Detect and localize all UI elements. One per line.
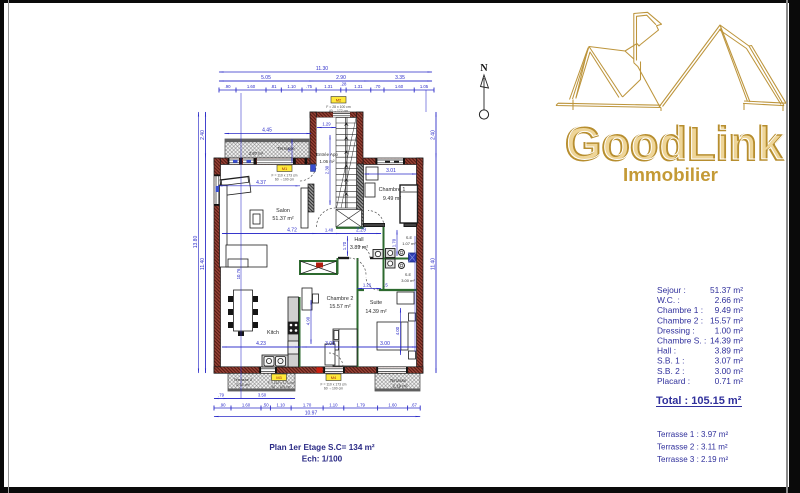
svg-text:Terrasse: Terrasse	[390, 378, 407, 383]
svg-text:5.05: 5.05	[261, 75, 271, 81]
svg-text:.5: .5	[384, 283, 388, 288]
svg-text:2.30: 2.30	[325, 165, 330, 174]
svg-text:.90: .90	[220, 403, 227, 408]
svg-text:Plan 1er Etage S.C= 134 m²: Plan 1er Etage S.C= 134 m²	[269, 443, 375, 452]
svg-text:60 →100 cm: 60 →100 cm	[275, 178, 294, 182]
svg-text:2.97 m²: 2.97 m²	[249, 151, 264, 156]
svg-text:15.57 m²: 15.57 m²	[710, 315, 743, 325]
svg-text:60 →100 cm: 60 →100 cm	[324, 387, 343, 391]
svg-text:Placard :: Placard :	[657, 376, 690, 386]
svg-text:M4: M4	[331, 375, 337, 380]
svg-text:10.97: 10.97	[305, 411, 318, 417]
svg-text:M2: M2	[336, 98, 342, 103]
svg-text:.90: .90	[225, 84, 232, 89]
svg-text:1.70: 1.70	[342, 241, 347, 250]
svg-text:3.00 m²: 3.00 m²	[715, 366, 744, 376]
svg-text:W.C. :: W.C. :	[657, 295, 680, 305]
svg-text:3.01: 3.01	[386, 168, 396, 174]
svg-text:9.49 m²: 9.49 m²	[383, 196, 401, 202]
svg-text:3.89 m²: 3.89 m²	[715, 346, 744, 356]
svg-text:14.39 m²: 14.39 m²	[365, 309, 386, 315]
svg-text:.75: .75	[306, 84, 313, 89]
svg-text:Chambre 1 :: Chambre 1 :	[657, 305, 703, 315]
svg-text:Terrasse 1 : 3.97 m²: Terrasse 1 : 3.97 m²	[657, 430, 728, 439]
svg-text:Hall :: Hall :	[657, 346, 676, 356]
svg-text:Chambre 1: Chambre 1	[379, 187, 406, 193]
svg-text:3.07 m²: 3.07 m²	[715, 356, 744, 366]
svg-text:1.10: 1.10	[329, 403, 338, 408]
svg-text:Terrasse 2 : 3.11 m²: Terrasse 2 : 3.11 m²	[657, 443, 728, 452]
svg-text:Terrasse 3 : 2.19 m²: Terrasse 3 : 2.19 m²	[657, 455, 728, 464]
svg-text:4.90: 4.90	[306, 316, 311, 325]
svg-text:1.70: 1.70	[392, 238, 397, 247]
svg-text:.67: .67	[411, 403, 418, 408]
svg-text:1.70: 1.70	[303, 403, 312, 408]
svg-text:3.50: 3.50	[258, 393, 267, 398]
svg-text:Hall: Hall	[354, 237, 363, 243]
svg-text:3.00: 3.00	[380, 341, 390, 347]
svg-text:2.66 m²: 2.66 m²	[715, 295, 744, 305]
svg-text:10.76: 10.76	[236, 268, 241, 279]
svg-text:4.37: 4.37	[256, 180, 266, 186]
svg-text:4.45: 4.45	[262, 128, 272, 134]
svg-text:3.89 m²: 3.89 m²	[350, 245, 368, 251]
svg-text:.81: .81	[271, 84, 278, 89]
svg-text:9.49 m²: 9.49 m²	[715, 305, 744, 315]
svg-text:1.48: 1.48	[325, 228, 334, 233]
svg-text:Entrée App: Entrée App	[316, 152, 338, 157]
svg-text:1.10: 1.10	[277, 403, 286, 408]
svg-text:1.79: 1.79	[357, 403, 366, 408]
svg-text:3.00 m²: 3.00 m²	[401, 278, 415, 283]
svg-text:14.39 m²: 14.39 m²	[710, 336, 743, 346]
svg-text:.79: .79	[218, 393, 225, 398]
svg-text:2.90: 2.90	[336, 75, 346, 81]
svg-text:11.40: 11.40	[431, 258, 437, 270]
svg-text:Salon: Salon	[276, 208, 290, 214]
svg-text:1.60: 1.60	[242, 403, 251, 408]
svg-text:1.60: 1.60	[247, 84, 256, 89]
svg-text:1.10: 1.10	[287, 84, 296, 89]
svg-text:M1: M1	[282, 166, 288, 171]
svg-text:1.29: 1.29	[322, 122, 331, 127]
svg-text:3.35: 3.35	[395, 75, 405, 81]
svg-text:Total : 105.15 m²: Total : 105.15 m²	[656, 395, 742, 407]
svg-text:51.37 m²: 51.37 m²	[272, 216, 293, 222]
svg-text:2.29: 2.29	[356, 228, 366, 234]
svg-text:S.B. 2 :: S.B. 2 :	[657, 366, 684, 376]
svg-text:13.80: 13.80	[193, 236, 199, 249]
svg-text:51.37 m²: 51.37 m²	[710, 285, 743, 295]
svg-text:.50: .50	[263, 403, 270, 408]
svg-text:Suite: Suite	[370, 300, 382, 306]
svg-text:4.72: 4.72	[287, 228, 297, 234]
svg-text:1.31: 1.31	[324, 84, 333, 89]
svg-text:Chambre 2 :: Chambre 2 :	[657, 315, 703, 325]
svg-text:Dressing :: Dressing :	[657, 325, 695, 335]
svg-text:15.57 m²: 15.57 m²	[329, 304, 350, 310]
svg-text:Chambre 2: Chambre 2	[327, 296, 354, 302]
svg-text:40 →172 cm: 40 →172 cm	[329, 109, 348, 113]
svg-text:11.40: 11.40	[200, 258, 206, 270]
svg-text:.70: .70	[374, 84, 381, 89]
svg-text:60 →100 cm: 60 →100 cm	[271, 385, 290, 389]
svg-text:1.07 m²: 1.07 m²	[402, 241, 416, 246]
svg-text:2.40: 2.40	[200, 130, 206, 140]
svg-text:4.00: 4.00	[395, 326, 400, 335]
svg-text:M3: M3	[276, 375, 282, 380]
svg-text:N: N	[480, 63, 488, 74]
svg-text:0.71 m²: 0.71 m²	[715, 376, 744, 386]
svg-text:1.60: 1.60	[388, 403, 397, 408]
svg-text:2.19 m²: 2.19 m²	[393, 384, 408, 389]
svg-text:1.60: 1.60	[395, 84, 404, 89]
svg-text:Terrasse: Terrasse	[277, 146, 295, 151]
svg-text:1.06 m²: 1.06 m²	[320, 159, 335, 164]
svg-text:4.23: 4.23	[256, 341, 266, 347]
svg-text:S.E: S.E	[405, 272, 412, 277]
svg-text:1.05: 1.05	[420, 84, 429, 89]
svg-text:Kitch: Kitch	[267, 330, 279, 336]
svg-text:S.E: S.E	[406, 235, 413, 240]
svg-text:1.31: 1.31	[354, 84, 363, 89]
svg-text:1.00 m²: 1.00 m²	[715, 325, 744, 335]
svg-text:.28: .28	[340, 82, 347, 87]
svg-text:3.00: 3.00	[325, 341, 335, 347]
svg-text:2.31 m²: 2.31 m²	[236, 382, 250, 387]
svg-text:Ech: 1/100: Ech: 1/100	[302, 455, 343, 464]
svg-text:1.26: 1.26	[363, 283, 372, 288]
svg-text:GoodLink: GoodLink	[567, 117, 786, 170]
svg-text:2.40: 2.40	[431, 130, 437, 140]
svg-text:Sejour :: Sejour :	[657, 285, 686, 295]
svg-text:11.30: 11.30	[316, 66, 328, 72]
svg-text:Immobilier: Immobilier	[623, 165, 718, 185]
svg-text:S.B. 1 :: S.B. 1 :	[657, 356, 684, 366]
svg-text:Chambre S. :: Chambre S. :	[657, 336, 706, 346]
